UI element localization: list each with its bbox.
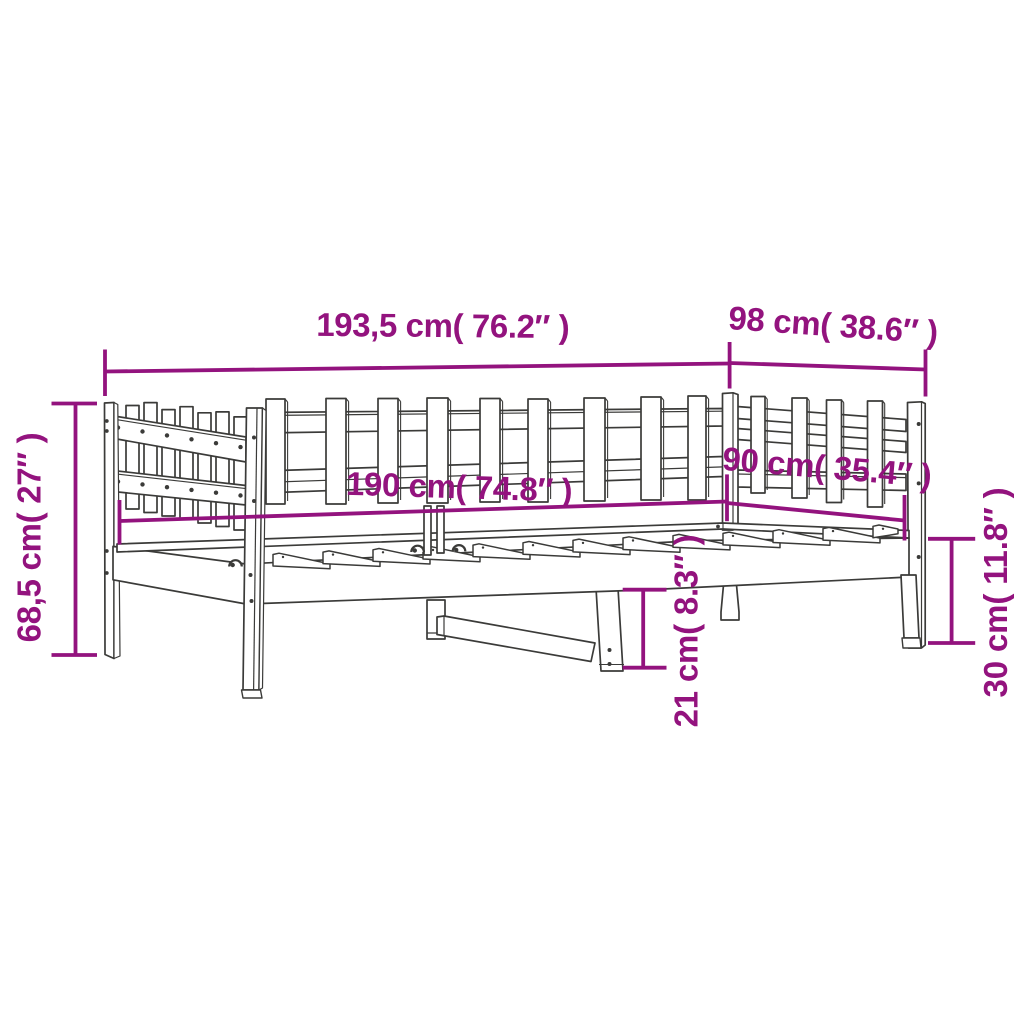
svg-text:68,5 cm( 27″ ): 68,5 cm( 27″ ) [11, 433, 48, 643]
svg-text:190 cm( 74.8″ ): 190 cm( 74.8″ ) [345, 465, 572, 509]
svg-text:21 cm( 8.3″ ): 21 cm( 8.3″ ) [668, 535, 705, 728]
svg-text:193,5 cm( 76.2″ ): 193,5 cm( 76.2″ ) [316, 306, 569, 345]
svg-text:30 cm( 11.8″ ): 30 cm( 11.8″ ) [977, 488, 1014, 698]
